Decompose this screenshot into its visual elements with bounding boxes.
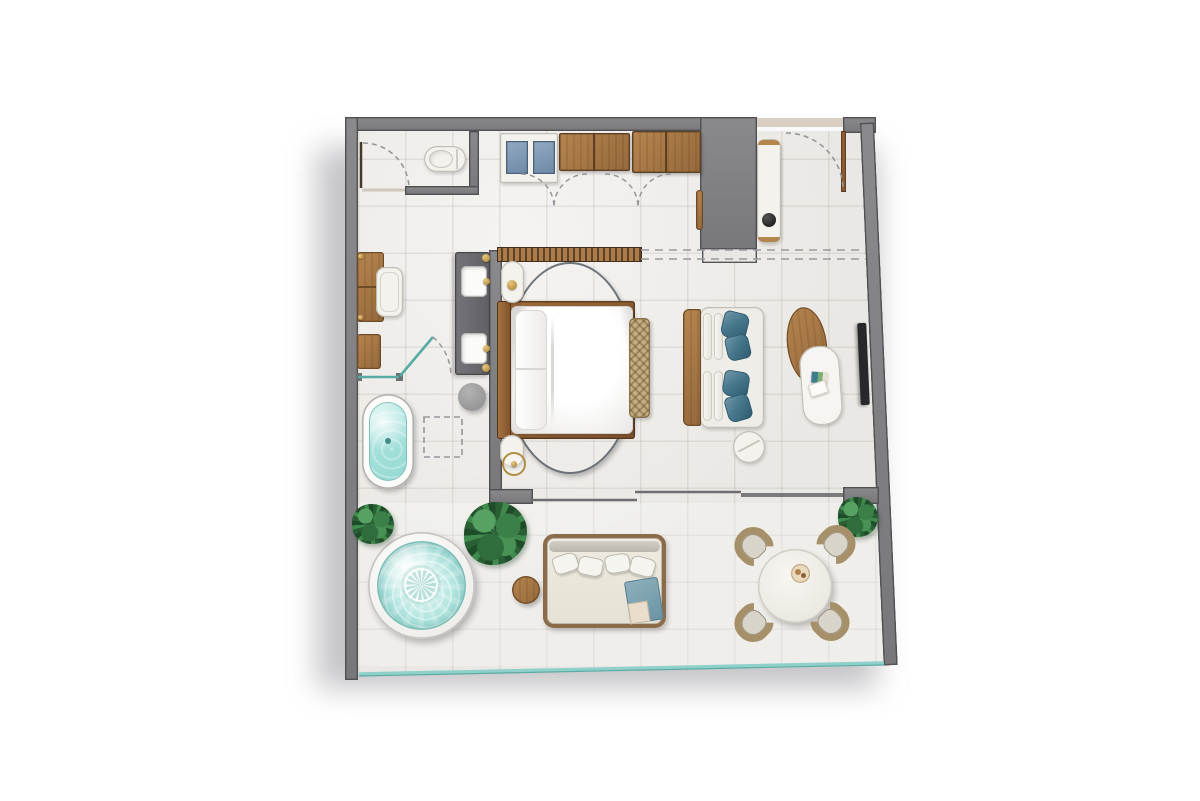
daybed-pillow [604, 552, 632, 575]
desk-chair-cushion [380, 272, 399, 312]
blue-drawer-right [533, 141, 555, 174]
entry-threshold [757, 118, 843, 127]
floor-lamp [502, 452, 526, 476]
vanity-sconce-north [482, 254, 490, 262]
serving-tray [791, 564, 810, 583]
coffee-table-white [798, 345, 843, 427]
desk-leg [358, 254, 363, 259]
sofa-bolster [714, 313, 723, 360]
wall-wc-right [469, 131, 479, 194]
toilet-bowl [429, 150, 453, 168]
wardrobe-side-panel [696, 190, 703, 230]
sofa-wood-back [683, 309, 701, 426]
entry-console-table [757, 139, 781, 243]
decor-bowl [762, 213, 776, 227]
glass-partition-cap-right [396, 373, 403, 381]
cup [801, 573, 806, 578]
bed-foot-bench [629, 318, 650, 418]
wall-left [345, 117, 358, 680]
sofa-bolster [703, 371, 712, 421]
floor-plan-canvas [0, 0, 1200, 801]
daybed-pillow [628, 554, 657, 579]
bathtub [362, 394, 414, 489]
vanity-counter [455, 252, 490, 375]
floor-lamp-bulb [511, 461, 517, 467]
faucet-north [483, 278, 490, 285]
pool-mosaic-medallion [404, 568, 438, 602]
desk-chair [376, 267, 403, 317]
blue-drawer-left [506, 141, 528, 174]
faucet-south [483, 345, 490, 352]
daybed-pillow [551, 551, 581, 577]
sofa-bolster [703, 313, 712, 360]
plunge-pool-rim [368, 532, 475, 639]
vanity-sconce-south [482, 364, 490, 372]
sofa-bolster [714, 371, 723, 421]
bathroom-stool [458, 383, 486, 411]
luggage-bench [357, 334, 381, 369]
wall-wc-bottom [405, 186, 479, 195]
toilet [424, 146, 466, 172]
daybed [543, 534, 666, 628]
toilet-tank-seam [456, 149, 458, 169]
bathtub-drain [385, 438, 391, 444]
slatted-headboard-wall [497, 247, 642, 262]
daybed-roll-cushion [549, 541, 660, 552]
table-lamp [507, 280, 517, 290]
terrace-plant-small [352, 504, 394, 544]
entry-step [702, 248, 757, 263]
side-table-handle [738, 439, 760, 452]
pillow-seam [515, 368, 547, 370]
console-wood-cap-top [758, 140, 780, 145]
bed-headboard [497, 301, 511, 439]
terrace-wood-side-table [512, 576, 540, 604]
console-wood-cap-bottom [758, 237, 780, 242]
glass-partition-cap-left [356, 373, 362, 381]
wardrobe-cabinet-right [632, 131, 701, 173]
daybed-pillow [576, 555, 604, 579]
wardrobe-cabinet-left [559, 133, 630, 171]
cabinet-seam [593, 133, 595, 171]
duvet-fold [551, 316, 554, 424]
desk-leg [358, 315, 363, 320]
side-table [733, 431, 765, 463]
entry-door-leaf [841, 131, 846, 192]
cabinet-seam [665, 131, 667, 173]
bed-duvet [511, 306, 633, 434]
bed-pillows [515, 310, 547, 430]
daybed-towel-flap [627, 601, 650, 625]
wall-entry-column [700, 117, 757, 250]
wall-top [345, 117, 757, 131]
